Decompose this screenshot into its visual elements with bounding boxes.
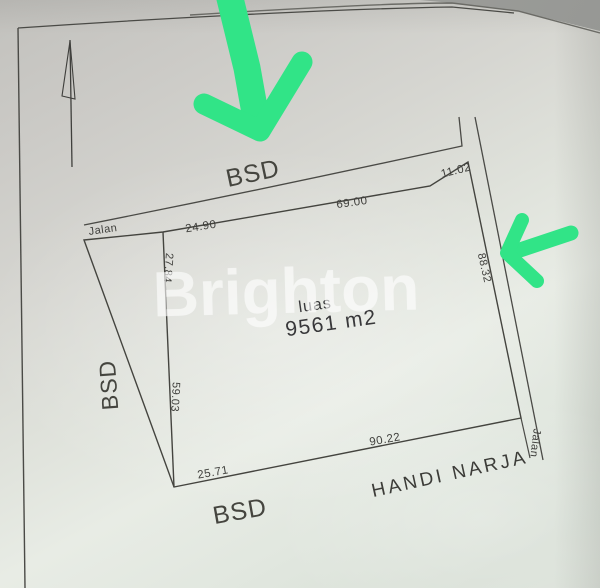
green-left-arrow bbox=[507, 220, 571, 281]
left-road-label: BSD bbox=[94, 359, 124, 411]
border-left-line bbox=[18, 28, 25, 588]
land-survey-photo: BSD Jalan 24.90 69.00 11.02 27.84 59.03 … bbox=[0, 0, 600, 588]
paper-edge-line bbox=[190, 3, 600, 33]
brighton-watermark: Brighton bbox=[152, 251, 420, 332]
green-down-arrow bbox=[204, 0, 302, 131]
measurement-left-lower: 59.03 bbox=[168, 382, 182, 413]
north-arrow-icon bbox=[62, 40, 75, 167]
right-road-right-edge bbox=[475, 117, 543, 460]
